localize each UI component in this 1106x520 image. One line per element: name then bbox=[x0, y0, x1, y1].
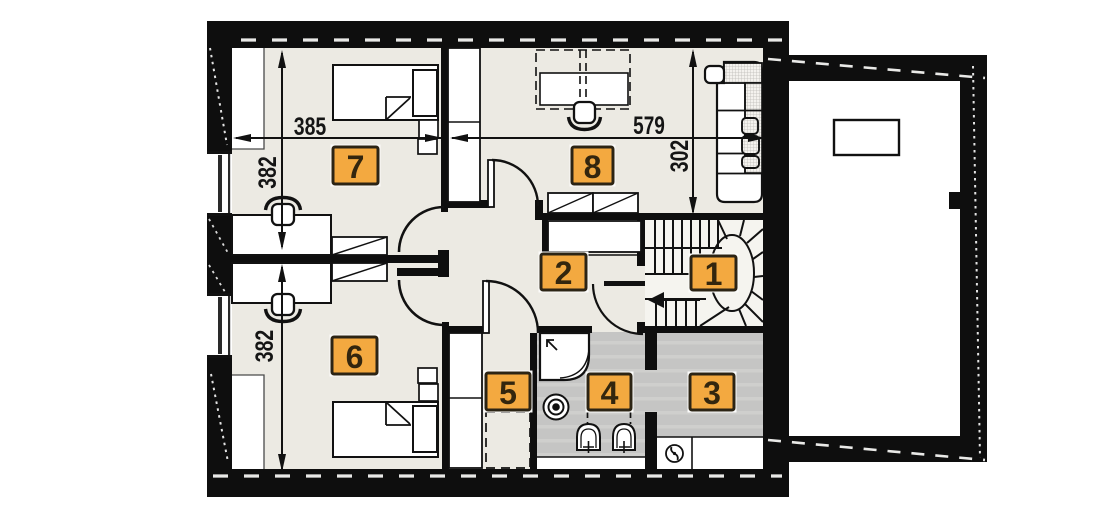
svg-text:385: 385 bbox=[294, 113, 327, 141]
svg-text:8: 8 bbox=[584, 149, 602, 185]
svg-text:2: 2 bbox=[555, 255, 573, 291]
svg-text:5: 5 bbox=[499, 375, 517, 411]
svg-text:1: 1 bbox=[705, 256, 723, 292]
svg-text:4: 4 bbox=[601, 375, 619, 411]
svg-text:7: 7 bbox=[347, 149, 365, 185]
svg-text:579: 579 bbox=[633, 111, 665, 139]
svg-text:302: 302 bbox=[666, 140, 694, 173]
svg-text:382: 382 bbox=[251, 330, 279, 363]
svg-text:6: 6 bbox=[346, 339, 364, 375]
svg-text:382: 382 bbox=[254, 156, 282, 189]
svg-text:3: 3 bbox=[703, 375, 721, 411]
